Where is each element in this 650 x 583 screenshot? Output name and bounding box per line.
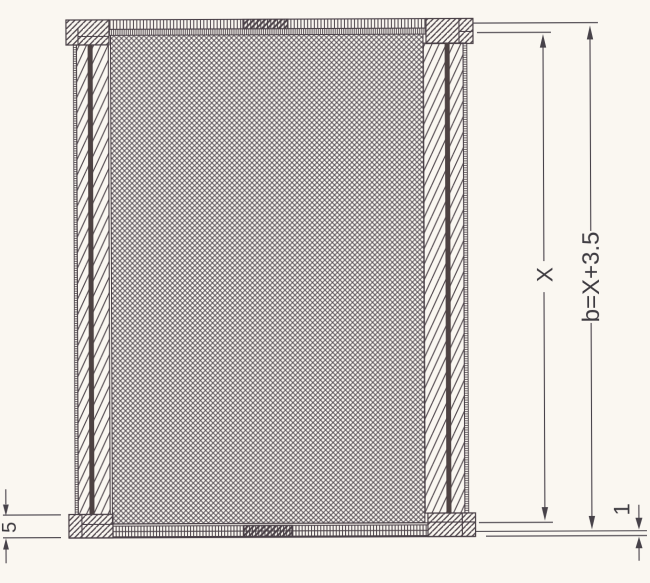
svg-text:X: X <box>532 267 557 282</box>
svg-text:5: 5 <box>0 522 21 533</box>
svg-text:1: 1 <box>609 503 634 515</box>
svg-text:b=X+3.5: b=X+3.5 <box>578 232 605 323</box>
